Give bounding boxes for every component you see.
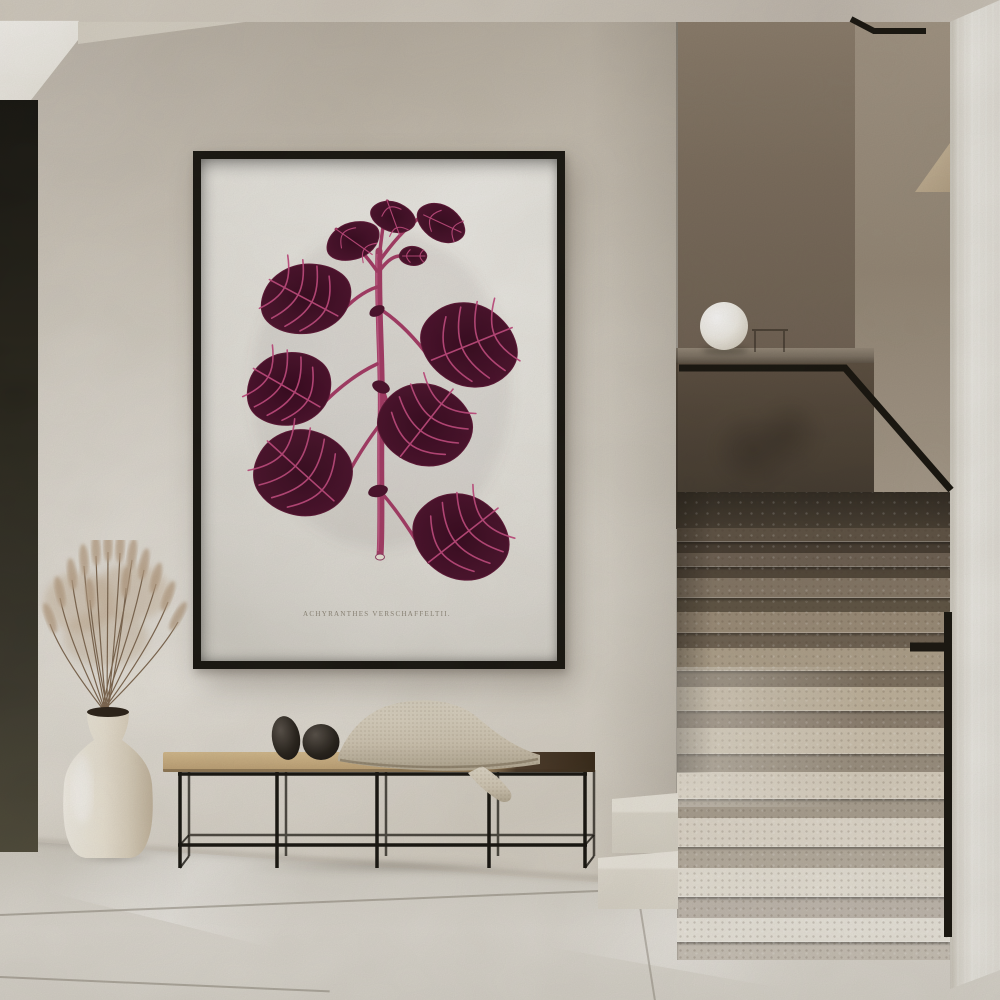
bench-back-frame xyxy=(189,770,594,856)
vase xyxy=(63,707,153,858)
grass-plume xyxy=(91,540,101,566)
plant-illustration: ACHYRANTHES VERSCHAFFELTII. xyxy=(201,159,557,661)
botanical-print: ACHYRANTHES VERSCHAFFELTII. xyxy=(201,159,557,661)
console-table-silhouette xyxy=(752,329,788,352)
vase-with-dried-grass xyxy=(20,540,200,870)
bench xyxy=(160,690,605,875)
floor-seam xyxy=(0,976,330,992)
concrete-blotch xyxy=(706,396,825,504)
grass-plume xyxy=(166,600,189,632)
grass-plume xyxy=(78,544,89,577)
stairwell-back-wall xyxy=(678,22,855,358)
dried-grass xyxy=(40,540,189,708)
sphere-lamp xyxy=(700,302,748,350)
stem-cut-tip xyxy=(376,554,385,560)
knit-throw xyxy=(338,700,540,802)
picture-frame: ACHYRANTHES VERSCHAFFELTII. xyxy=(193,151,565,669)
vase-graphic xyxy=(20,540,200,870)
grass-plume xyxy=(104,540,113,562)
bottom-step xyxy=(598,851,678,909)
print-caption: ACHYRANTHES VERSCHAFFELTII. xyxy=(303,610,451,618)
interior-scene: ACHYRANTHES VERSCHAFFELTII. xyxy=(0,0,1000,1000)
stair-steps xyxy=(677,492,951,960)
step-sunpatch xyxy=(677,667,951,807)
foreground-wall xyxy=(950,0,1000,995)
grass-plume xyxy=(115,540,126,563)
bench-graphic xyxy=(160,690,605,875)
bench-frame xyxy=(178,772,587,868)
bottom-step xyxy=(612,793,678,853)
ceiling xyxy=(0,0,1000,22)
